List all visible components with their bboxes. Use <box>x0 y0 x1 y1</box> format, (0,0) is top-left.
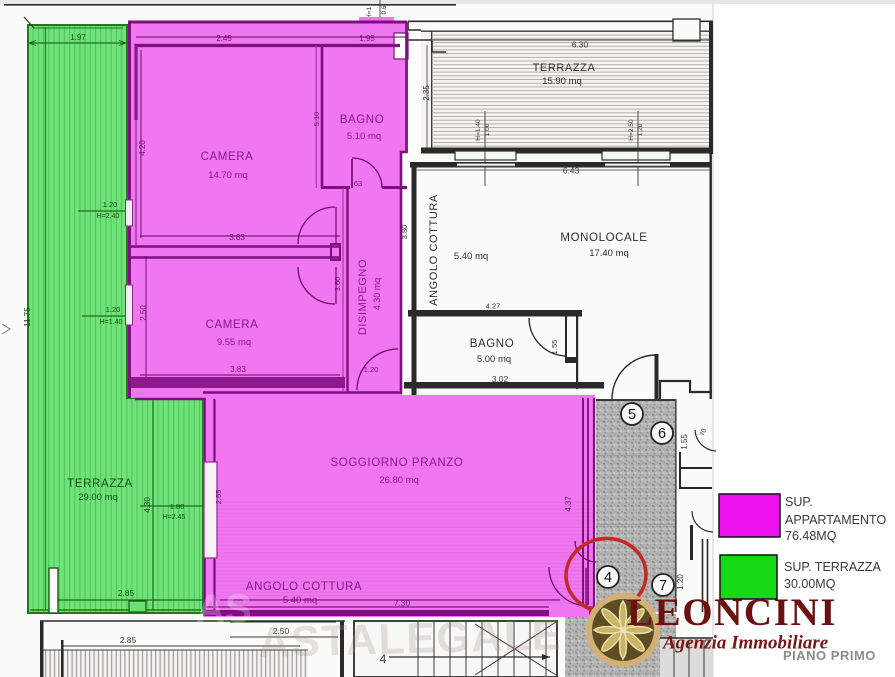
svg-text:4.30: 4.30 <box>143 497 152 513</box>
svg-text:6.30: 6.30 <box>572 40 589 50</box>
svg-text:3.83: 3.83 <box>230 365 246 374</box>
svg-text:0.6: 0.6 <box>381 5 388 14</box>
svg-text:4.30 mq: 4.30 mq <box>372 278 382 311</box>
svg-text:BAGNO: BAGNO <box>470 338 515 350</box>
svg-text:6.43: 6.43 <box>563 166 580 176</box>
svg-text:H=2.45: H=2.45 <box>163 514 186 521</box>
svg-text:1.00: 1.00 <box>484 123 491 136</box>
svg-text:BAGNO: BAGNO <box>340 114 385 126</box>
svg-text:5.10 mq: 5.10 mq <box>347 131 381 142</box>
svg-text:4.27: 4.27 <box>486 302 501 311</box>
svg-text:1.20: 1.20 <box>103 200 118 209</box>
svg-text:2.50: 2.50 <box>139 305 148 321</box>
svg-text:1.97: 1.97 <box>70 33 86 42</box>
svg-text:4: 4 <box>604 570 612 586</box>
svg-text:H=2.40: H=2.40 <box>97 213 120 220</box>
svg-text:AS: AS <box>196 587 252 631</box>
svg-text:2.85: 2.85 <box>120 635 137 645</box>
svg-text:5.10: 5.10 <box>312 112 321 127</box>
svg-text:1.55: 1.55 <box>680 434 689 450</box>
svg-text:H=1.40: H=1.40 <box>100 319 123 326</box>
svg-text:2.45: 2.45 <box>216 34 232 43</box>
svg-text:1.80: 1.80 <box>170 502 185 511</box>
svg-text:H=2.50: H=2.50 <box>628 119 635 141</box>
svg-text:H=1.40: H=1.40 <box>475 119 482 141</box>
svg-text:1.20: 1.20 <box>364 365 379 374</box>
svg-text:6: 6 <box>658 426 666 442</box>
svg-text:9.55 mq: 9.55 mq <box>217 337 251 348</box>
svg-text:LEONCINI: LEONCINI <box>627 591 837 634</box>
svg-text:5.00 mq: 5.00 mq <box>477 354 511 365</box>
svg-text:14.70 mq: 14.70 mq <box>208 170 248 181</box>
svg-text:5: 5 <box>628 407 636 423</box>
svg-text:29.00 mq: 29.00 mq <box>78 492 118 503</box>
svg-text:1.20: 1.20 <box>637 123 644 136</box>
svg-text:SUP.: SUP. <box>785 495 813 509</box>
svg-text:ANGOLO COTTURA: ANGOLO COTTURA <box>428 194 440 306</box>
svg-text:2.85: 2.85 <box>118 588 135 598</box>
svg-text:Agenzia Immobiliare: Agenzia Immobiliare <box>662 633 829 654</box>
svg-text:ASTALEGALE: ASTALEGALE <box>258 611 562 667</box>
svg-text:76.48MQ: 76.48MQ <box>785 529 837 543</box>
svg-text:.63: .63 <box>352 179 362 188</box>
svg-text:APPARTAMENTO: APPARTAMENTO <box>785 513 886 527</box>
svg-text:CAMERA: CAMERA <box>201 151 254 163</box>
svg-text:26.80 mq: 26.80 mq <box>379 475 419 486</box>
svg-text:4.20: 4.20 <box>138 140 147 156</box>
svg-text:SUP. TERRAZZA: SUP. TERRAZZA <box>784 560 881 574</box>
svg-text:TERRAZZA: TERRAZZA <box>67 478 133 490</box>
svg-text:11.75: 11.75 <box>23 307 32 327</box>
svg-text:1.55: 1.55 <box>550 340 559 355</box>
svg-text:MONOLOCALE: MONOLOCALE <box>560 232 647 244</box>
svg-text:2.35: 2.35 <box>422 85 431 101</box>
svg-text:17.40 mq: 17.40 mq <box>589 248 629 259</box>
svg-text:1.95: 1.95 <box>359 34 375 43</box>
svg-text:15.90 mq: 15.90 mq <box>542 76 582 87</box>
svg-text:SOGGIORNO PRANZO: SOGGIORNO PRANZO <box>331 457 464 469</box>
svg-text:30.00MQ: 30.00MQ <box>784 577 836 591</box>
svg-text:CAMERA: CAMERA <box>206 319 259 331</box>
svg-text:TERRAZZA: TERRAZZA <box>533 62 596 74</box>
svg-text:3.83: 3.83 <box>229 233 245 242</box>
svg-text:3.02: 3.02 <box>492 374 509 384</box>
svg-text:5.40 mq: 5.40 mq <box>454 251 488 262</box>
svg-text:3.60: 3.60 <box>333 277 342 292</box>
svg-text:1.20: 1.20 <box>106 305 121 314</box>
svg-text:DISIMPEGNO: DISIMPEGNO <box>357 259 369 335</box>
svg-text:1.20: 1.20 <box>676 574 685 590</box>
